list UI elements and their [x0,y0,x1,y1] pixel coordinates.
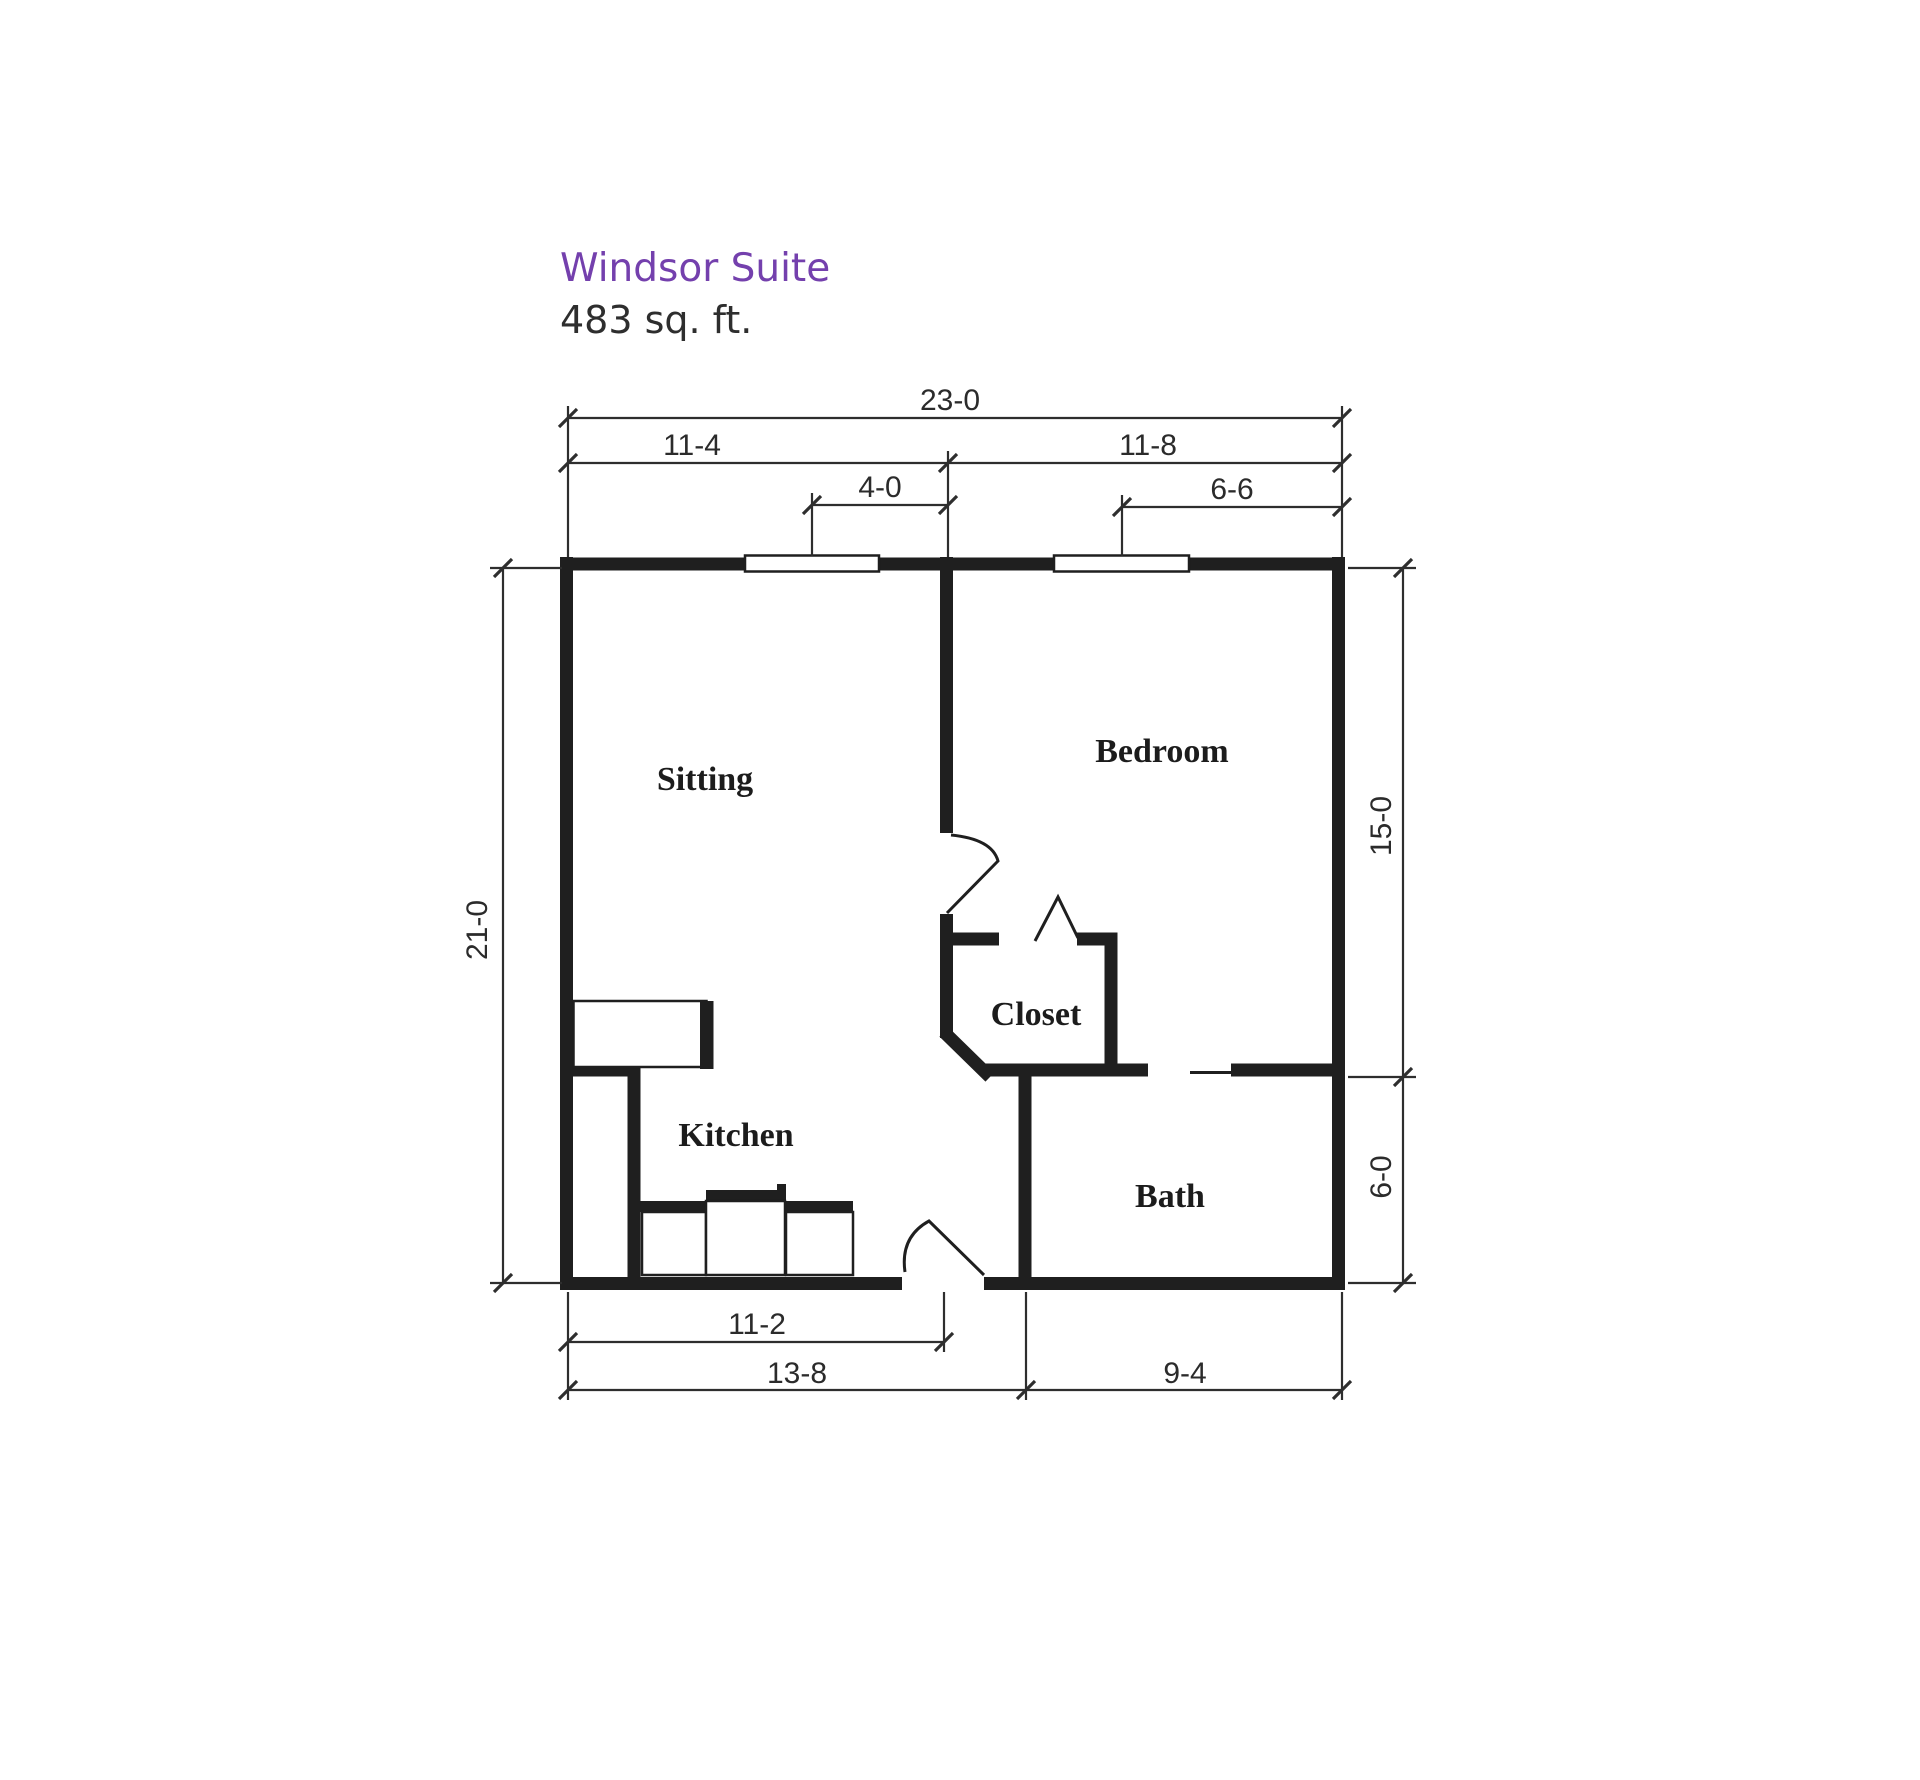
kitchen-counter-end [700,1001,714,1069]
dim-sitting-window: 4-0 [858,471,901,504]
dim-sitting-width: 11-4 [663,429,721,462]
dim-bedroom-width: 11-8 [1119,429,1177,462]
sitting-window [745,556,879,572]
range-handle [777,1184,786,1190]
dim-kitchen-width: 13-8 [767,1357,827,1390]
kitchen-range [706,1201,785,1275]
dim-entry-offset: 11-2 [728,1308,786,1341]
bedroom-door-swing [947,835,998,913]
kitchen-cabinet-right [786,1212,853,1275]
closet-door [1035,897,1078,941]
floor-plan-svg: Windsor Suite 483 sq. ft. [0,0,1920,1780]
kitchen-cabinet-left [642,1212,706,1275]
bedroom-window [1054,556,1189,572]
dim-bath-width: 9-4 [1163,1357,1206,1390]
kitchen-counter [574,1001,707,1067]
dim-bedroom-depth: 15-0 [1365,796,1398,856]
room-label-bath: Bath [1135,1178,1205,1215]
floor-plan-page: Windsor Suite 483 sq. ft. [0,0,1920,1780]
dim-bedroom-window: 6-6 [1210,473,1253,506]
interior-walls [560,557,1345,1290]
suite-title: Windsor Suite [560,246,830,291]
dim-overall-width: 23-0 [920,384,980,417]
dim-bath-depth: 6-0 [1365,1155,1398,1198]
entry-door-swing [904,1221,984,1275]
room-label-sitting: Sitting [657,761,753,798]
dimension-labels: 23-0 11-4 11-8 4-0 6-6 21-0 15-0 6-0 11-… [461,384,1398,1390]
room-label-kitchen: Kitchen [678,1117,793,1154]
room-label-closet: Closet [991,996,1082,1033]
room-label-bedroom: Bedroom [1095,733,1228,770]
suite-area: 483 sq. ft. [560,298,752,342]
dim-overall-depth: 21-0 [461,900,494,960]
doors [904,835,1078,1275]
range-back [706,1190,786,1201]
